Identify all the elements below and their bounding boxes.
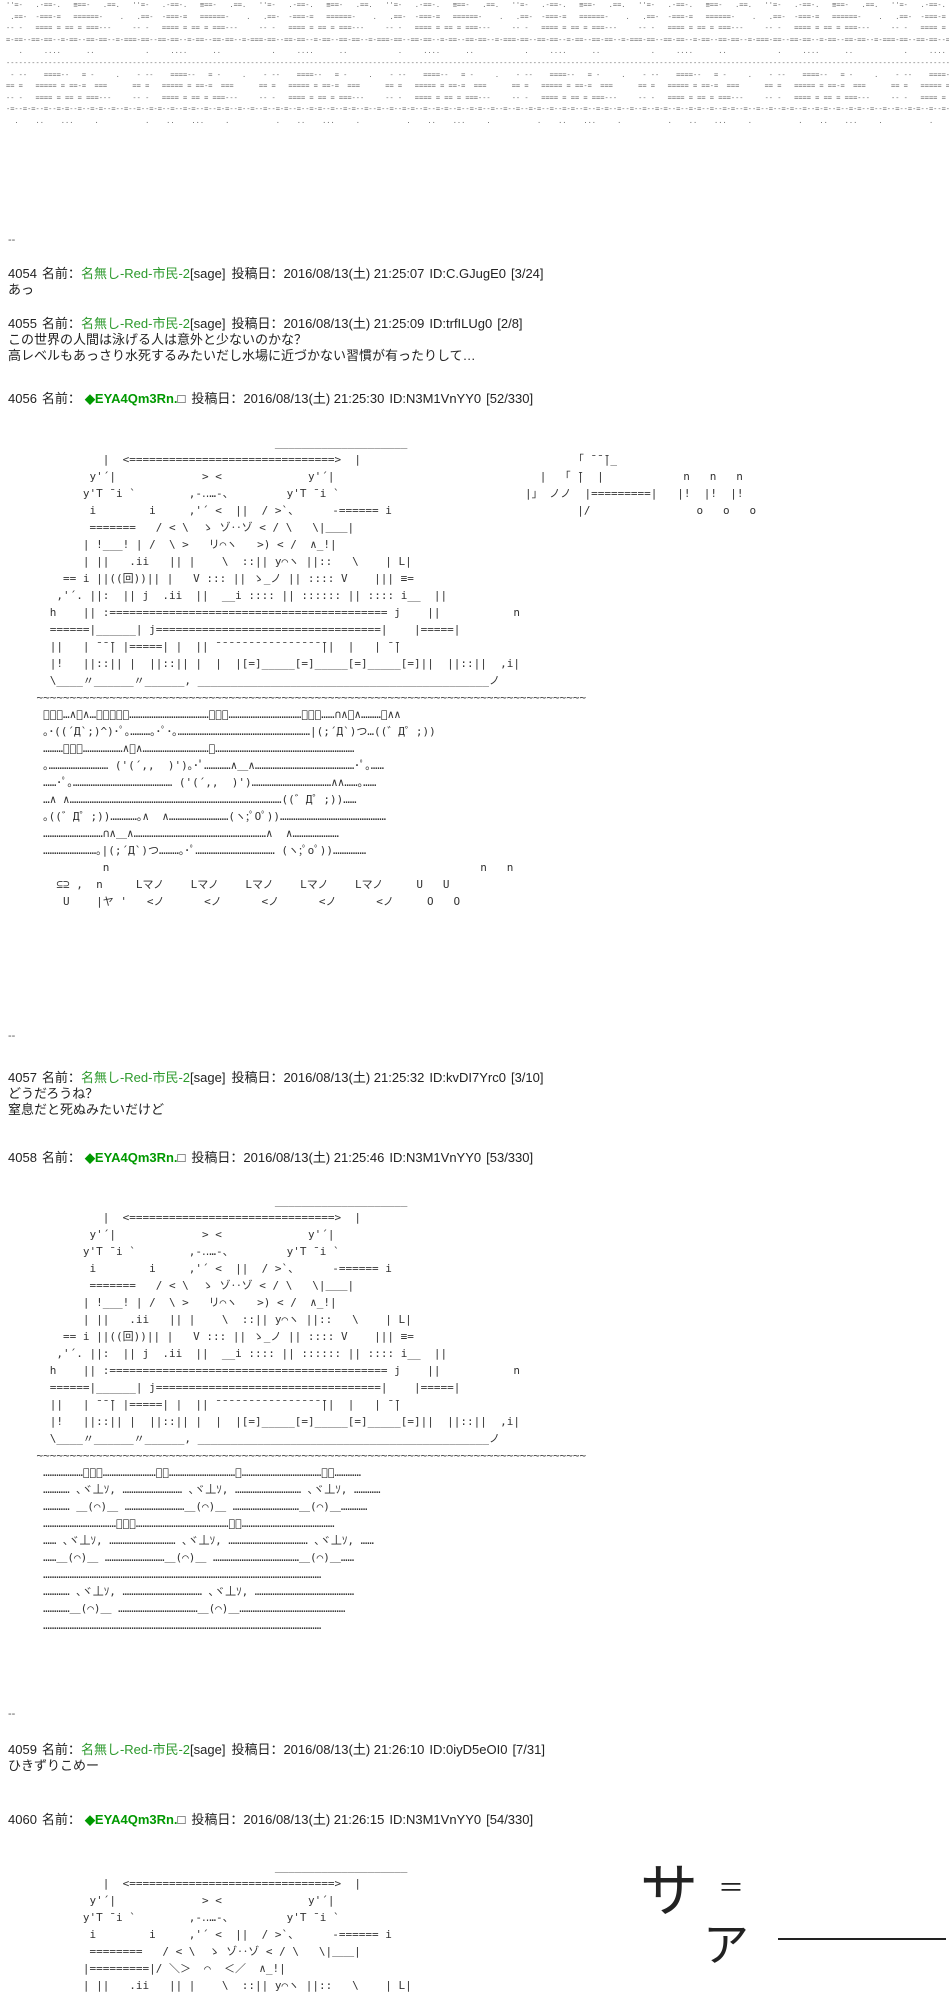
- post-id: ID:kvDI7Yrc0: [429, 1070, 506, 1085]
- post-header: 4056名前：◆EYA4Qm3Rn.□投稿日：2016/08/13(土) 21:…: [8, 391, 949, 407]
- poster-name: 名無し-Red-市民-2: [81, 1742, 190, 1757]
- ascii-art-pool-palace-with-swimmers: ____________________ | <================…: [10, 434, 949, 910]
- post-id: ID:trfILUg0: [429, 316, 492, 331]
- post-4055: 4055名前：名無し-Red-市民-2[sage]投稿日：2016/08/13(…: [8, 316, 949, 363]
- post-header: 4055名前：名無し-Red-市民-2[sage]投稿日：2016/08/13(…: [8, 316, 949, 332]
- post-body: あっ: [8, 282, 949, 298]
- post-body: どうだろうね？ 窒息だと死ぬみたいだけど: [8, 1086, 949, 1117]
- post-number: 4059: [8, 1742, 37, 1757]
- post-datetime: 2016/08/13(土) 21:26:15: [243, 1812, 384, 1827]
- poster-tripcode: ◆EYA4Qm3Rn.: [85, 391, 178, 406]
- post-number: 4055: [8, 316, 37, 331]
- name-label: 名前：: [42, 1742, 81, 1757]
- post-id: ID:N3M1VnYY0: [389, 1150, 481, 1165]
- name-label: 名前：: [42, 266, 81, 281]
- post-separator: --: [8, 1030, 15, 1042]
- name-label: 名前：: [42, 1070, 81, 1085]
- post-id: ID:0iyD5eOI0: [429, 1742, 507, 1757]
- date-label: 投稿日：: [191, 391, 243, 406]
- date-label: 投稿日：: [191, 1812, 243, 1827]
- sage-tag: [sage]: [190, 266, 225, 281]
- post-header: 4060名前：◆EYA4Qm3Rn.□投稿日：2016/08/13(土) 21:…: [8, 1812, 949, 1828]
- sage-tag: [sage]: [190, 1070, 225, 1085]
- date-label: 投稿日：: [231, 266, 283, 281]
- post-count: [7/31]: [512, 1742, 545, 1757]
- splash-sound-a-glyph: ア: [703, 1922, 749, 1968]
- post-body: ひきずりこめー: [8, 1758, 949, 1774]
- post-count: [53/330]: [486, 1150, 533, 1165]
- post-count: [2/8]: [497, 316, 522, 331]
- bbs-thread-page: ''=- .-==-. ≡==- .==. ''=- .-==-. ≡==- .…: [0, 0, 949, 2000]
- name-label: 名前：: [42, 1150, 81, 1165]
- post-id: ID:C.GJugE0: [429, 266, 506, 281]
- trip-tofu-glyph: □: [178, 391, 186, 406]
- ascii-art-text: ____________________ | <================…: [10, 1192, 949, 1634]
- post-datetime: 2016/08/13(土) 21:25:07: [283, 266, 424, 281]
- post-number: 4057: [8, 1070, 37, 1085]
- post-number: 4058: [8, 1150, 37, 1165]
- name-label: 名前：: [42, 316, 81, 331]
- post-4060: 4060名前：◆EYA4Qm3Rn.□投稿日：2016/08/13(土) 21:…: [8, 1812, 949, 1828]
- post-count: [3/10]: [511, 1070, 544, 1085]
- ascii-art-pool-palace-with-fountains: ____________________ | <================…: [10, 1192, 949, 1634]
- post-datetime: 2016/08/13(土) 21:25:09: [283, 316, 424, 331]
- post-id: ID:N3M1VnYY0: [389, 391, 481, 406]
- sage-tag: [sage]: [190, 316, 225, 331]
- poster-name: 名無し-Red-市民-2: [81, 266, 190, 281]
- post-number: 4054: [8, 266, 37, 281]
- post-4054: 4054名前：名無し-Red-市民-2[sage]投稿日：2016/08/13(…: [8, 266, 949, 298]
- post-separator: --: [8, 234, 15, 246]
- date-label: 投稿日：: [231, 1742, 283, 1757]
- post-4059: 4059名前：名無し-Red-市民-2[sage]投稿日：2016/08/13(…: [8, 1742, 949, 1774]
- date-label: 投稿日：: [231, 1070, 283, 1085]
- date-label: 投稿日：: [231, 316, 283, 331]
- previous-post-aa-overflow: ''=- .-==-. ≡==- .==. ''=- .-==-. ≡==- .…: [6, 0, 949, 128]
- post-header: 4054名前：名無し-Red-市民-2[sage]投稿日：2016/08/13(…: [8, 266, 949, 282]
- post-count: [52/330]: [486, 391, 533, 406]
- poster-name: 名無し-Red-市民-2: [81, 1070, 190, 1085]
- poster-tripcode: ◆EYA4Qm3Rn.: [85, 1812, 178, 1827]
- post-4058: 4058名前：◆EYA4Qm3Rn.□投稿日：2016/08/13(土) 21:…: [8, 1150, 949, 1166]
- ascii-art-pool-palace-cutoff: ____________________ | <================…: [10, 1858, 949, 1994]
- name-label: 名前：: [42, 1812, 81, 1827]
- post-header: 4057名前：名無し-Red-市民-2[sage]投稿日：2016/08/13(…: [8, 1070, 949, 1086]
- post-header: 4059名前：名無し-Red-市民-2[sage]投稿日：2016/08/13(…: [8, 1742, 949, 1758]
- poster-tripcode: ◆EYA4Qm3Rn.: [85, 1150, 178, 1165]
- post-4056: 4056名前：◆EYA4Qm3Rn.□投稿日：2016/08/13(土) 21:…: [8, 391, 949, 407]
- ascii-art-text: ____________________ | <================…: [10, 1858, 949, 1994]
- poster-name: 名無し-Red-市民-2: [81, 316, 190, 331]
- trip-tofu-glyph: □: [178, 1150, 186, 1165]
- post-separator: --: [8, 1708, 15, 1720]
- post-datetime: 2016/08/13(土) 21:26:10: [283, 1742, 424, 1757]
- post-body: この世界の人間は泳げる人は意外と少ないのかな？ 高レベルもあっさり水死するみたい…: [8, 332, 949, 363]
- splash-sound-long-line: [778, 1938, 946, 1940]
- post-count: [3/24]: [511, 266, 544, 281]
- post-id: ID:N3M1VnYY0: [389, 1812, 481, 1827]
- name-label: 名前：: [42, 391, 81, 406]
- post-number: 4056: [8, 391, 37, 406]
- post-count: [54/330]: [486, 1812, 533, 1827]
- date-label: 投稿日：: [191, 1150, 243, 1165]
- splash-sound-dash-glyph: ＝: [718, 1868, 744, 1905]
- post-4057: 4057名前：名無し-Red-市民-2[sage]投稿日：2016/08/13(…: [8, 1070, 949, 1117]
- sage-tag: [sage]: [190, 1742, 225, 1757]
- post-datetime: 2016/08/13(土) 21:25:46: [243, 1150, 384, 1165]
- post-header: 4058名前：◆EYA4Qm3Rn.□投稿日：2016/08/13(土) 21:…: [8, 1150, 949, 1166]
- post-datetime: 2016/08/13(土) 21:25:32: [283, 1070, 424, 1085]
- post-datetime: 2016/08/13(土) 21:25:30: [243, 391, 384, 406]
- splash-sound-sa-glyph: サ: [640, 1862, 698, 1920]
- trip-tofu-glyph: □: [178, 1812, 186, 1827]
- post-number: 4060: [8, 1812, 37, 1827]
- ascii-art-text: ____________________ | <================…: [10, 434, 949, 910]
